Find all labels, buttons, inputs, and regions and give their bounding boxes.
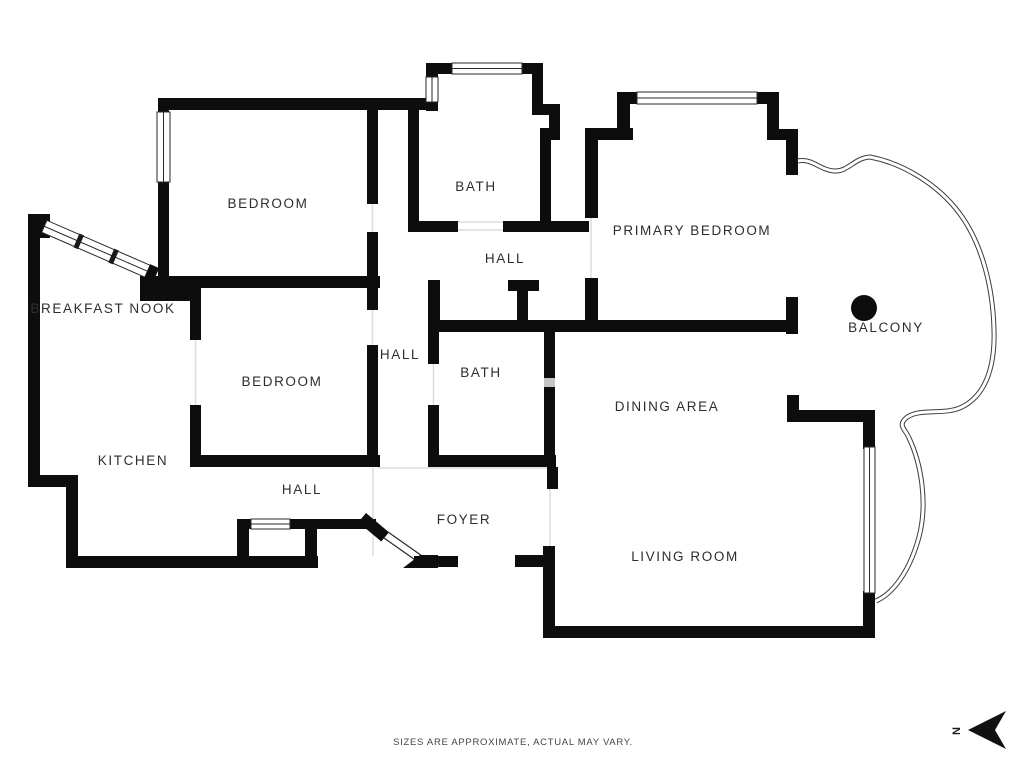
room-label-hall-lower: HALL: [282, 482, 322, 497]
balcony-column: [851, 295, 877, 321]
room-label-foyer: FOYER: [437, 512, 492, 527]
disclaimer-text: SIZES ARE APPROXIMATE, ACTUAL MAY VARY.: [393, 737, 633, 748]
balcony-railing: [798, 157, 994, 601]
window: [452, 63, 522, 74]
diagonal-window: [33, 216, 160, 283]
room-label-dining-area: DINING AREA: [615, 399, 720, 414]
room-label-hall-upper: HALL: [485, 251, 525, 266]
walls: [28, 63, 875, 638]
window: [251, 519, 290, 529]
window: [157, 112, 170, 182]
north-arrow: N: [951, 711, 1006, 749]
room-label-bedroom-mid: BEDROOM: [242, 374, 323, 389]
window: [637, 92, 757, 104]
north-arrow-icon: [968, 711, 1006, 749]
room-label-bedroom-top: BEDROOM: [228, 196, 309, 211]
room-label-hall-mid: HALL: [380, 347, 420, 362]
entry-door: [358, 513, 438, 568]
room-label-bath-mid: BATH: [460, 365, 501, 380]
window: [426, 77, 438, 102]
shower-door-marker: [544, 378, 555, 387]
bath-door-opening: [458, 221, 503, 232]
room-label-living-room: LIVING ROOM: [631, 549, 739, 564]
north-label: N: [951, 727, 963, 735]
floor-plan-drawing: BEDROOM BATH HALL PRIMARY BEDROOM BALCON…: [0, 0, 1024, 768]
room-label-breakfast-nook: BREAKFAST NOOK: [30, 301, 175, 316]
room-label-primary-bedroom: PRIMARY BEDROOM: [613, 223, 772, 238]
room-label-kitchen: KITCHEN: [98, 453, 168, 468]
window: [864, 447, 875, 593]
room-label-bath-top: BATH: [455, 179, 496, 194]
floor-plan-page: BEDROOM BATH HALL PRIMARY BEDROOM BALCON…: [0, 0, 1024, 768]
room-label-balcony: BALCONY: [848, 320, 924, 335]
